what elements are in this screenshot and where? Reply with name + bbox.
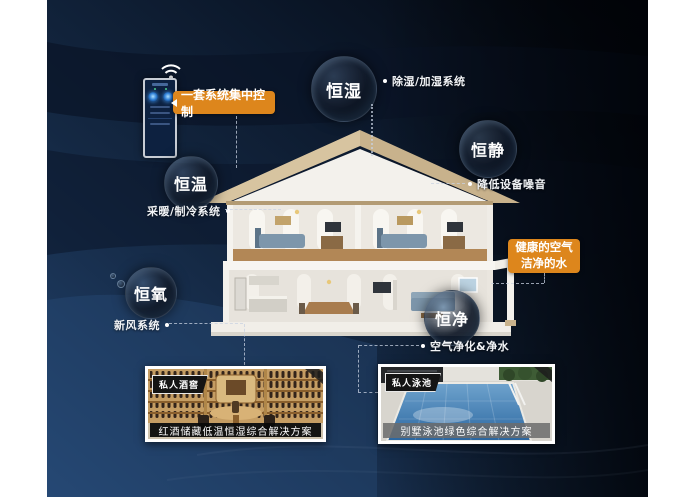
dashed-connector [358,392,378,393]
bubble-label: 恒温 [174,171,208,195]
poster: 一套系统集中控制 [0,0,700,497]
pool-photo-frame: 私人泳池 别墅泳池绿色综合解决方案 [381,367,552,441]
callout-fresh-air: 新风系统 [114,317,169,333]
smart-control-panel [143,78,177,158]
upper-floor [227,205,493,261]
callout-text: 除湿/加湿系统 [392,73,466,89]
status-dot [154,88,156,90]
pool-card: 私人泳池 别墅泳池绿色综合解决方案 [378,364,555,444]
bubble-constant-oxygen: 恒氧 [125,267,177,319]
bubble-constant-temperature: 恒温 [164,156,218,210]
dashed-connector [244,324,245,365]
callout-text: 采暖/制冷系统 [147,203,221,219]
dashed-connector [431,183,465,184]
bullet-dot [421,344,425,348]
dashed-connector [359,345,419,346]
dotted-connector [371,104,373,156]
callout-text: 空气净化&净水 [430,338,509,354]
deco-bubble [117,280,125,288]
dashed-connector [491,283,544,284]
wine-cellar-card: 私人酒窖 红酒储藏低温恒湿综合解决方案 [145,366,326,442]
wine-cellar-tag: 私人酒窖 [152,375,208,394]
callout-text: 降低设备噪音 [477,176,546,192]
bubble-label: 恒静 [471,137,505,161]
dashed-connector [225,209,281,210]
highlight-line1: 健康的空气 [515,240,573,256]
dashed-connector [358,345,359,392]
bullet-dot [468,182,472,186]
bullet-dot [383,79,387,83]
deco-bubble [110,273,116,279]
callout-heating-cooling: 采暖/制冷系统 [147,203,230,219]
callout-noise: 降低设备噪音 [468,176,546,192]
control-knob-left [148,92,158,102]
panel-status-dots [149,88,171,90]
callout-purify: 空气净化&净水 [421,338,509,354]
pool-tag: 私人泳池 [385,373,441,392]
poster-content: 一套系统集中控制 [47,0,648,497]
status-dot [165,88,167,90]
panel-readout-line [150,123,170,125]
bubble-label: 恒净 [435,306,469,330]
dashed-connector [169,323,243,324]
callout-dehumidify: 除湿/加湿系统 [383,73,466,89]
wine-cellar-caption: 红酒储藏低温恒湿综合解决方案 [150,423,321,437]
pool-caption: 别墅泳池绿色综合解决方案 [383,423,550,438]
arrow-left-icon [171,99,177,107]
dashed-connector [544,273,545,283]
bubble-constant-humidity: 恒湿 [311,56,377,122]
bubble-constant-quiet: 恒静 [459,120,517,178]
panel-divider [148,118,172,119]
panel-readout-line [150,112,170,114]
bubble-label: 恒氧 [134,281,168,305]
callout-text: 新风系统 [114,317,160,333]
wine-cellar-photo-frame: 私人酒窖 红酒储藏低温恒湿综合解决方案 [148,369,323,439]
panel-titlebar [152,83,168,86]
healthy-air-water-label: 健康的空气 洁净的水 [508,239,580,273]
highlight-line2: 洁净的水 [521,256,567,272]
bubble-label: 恒湿 [326,77,362,102]
panel-readout-line [150,106,170,108]
